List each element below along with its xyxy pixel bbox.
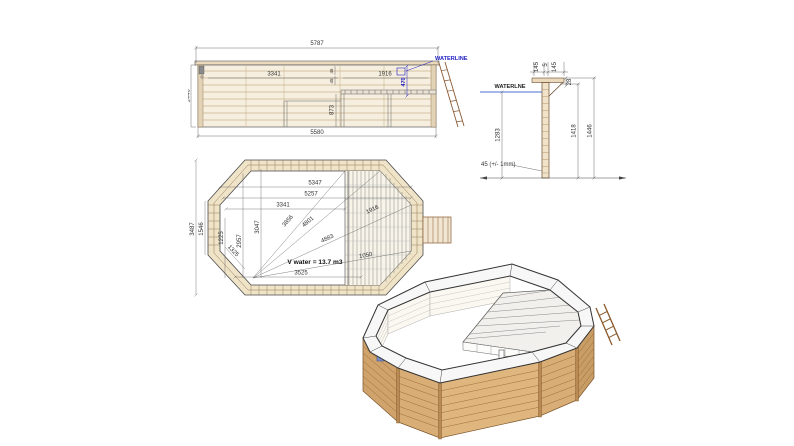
dim-cap-right: 145 xyxy=(552,61,558,72)
dim-deck-height: 873 xyxy=(330,104,336,115)
section-waterline-label: WATERLNE xyxy=(495,84,526,90)
section-detail-view: WATERLNE 145 5 145 28 1283 1418 1446 45 … xyxy=(478,38,628,188)
dim-rim-a: 45 xyxy=(329,68,334,73)
dim-rim-b: 45 xyxy=(329,78,334,83)
pool-technical-drawing: 5787 5580 1446 3341 1916 45 45 873 470 W… xyxy=(0,0,794,446)
dim-water-depth: 1283 xyxy=(496,128,502,142)
plan-ladder xyxy=(423,217,451,243)
dim-inner-length-a: 5347 xyxy=(308,181,322,187)
dim-height: 1446 xyxy=(188,89,192,103)
dim-vert-a: 2957 xyxy=(237,234,243,248)
dim-waterline-offset: 470 xyxy=(401,77,407,86)
dim-overall-width: 5787 xyxy=(310,41,324,47)
elevation-view: 5787 5580 1446 3341 1916 45 45 873 470 W… xyxy=(188,30,478,148)
dim-inner-length-b: 5257 xyxy=(304,192,318,198)
dim-base-width: 5580 xyxy=(310,130,324,136)
elevation-ladder xyxy=(439,62,464,127)
dim-cap-left: 145 xyxy=(534,61,540,72)
elevation-waterline-label: WATERLINE xyxy=(435,56,468,62)
dim-plan-open-length: 3341 xyxy=(276,203,290,209)
dim-cap-drop: 28 xyxy=(567,78,573,85)
dim-side-length: 1546 xyxy=(199,222,205,236)
dim-deck-length: 1916 xyxy=(378,72,392,78)
isometric-view xyxy=(350,248,662,446)
dim-inner-side: 1225 xyxy=(219,231,225,245)
dim-open-length: 3341 xyxy=(267,72,281,78)
dim-vert-b: 3047 xyxy=(255,220,261,234)
dim-bottom-length: 3525 xyxy=(294,271,308,277)
dim-plank-note: 45 (+/- 1mm) xyxy=(481,162,516,168)
dim-inner-height: 1418 xyxy=(572,124,578,138)
dim-plan-overall-width: 3487 xyxy=(190,222,196,236)
section-waterline-group: WATERLNE xyxy=(480,84,542,92)
volume-label: V water = 13.7 m3 xyxy=(287,259,342,266)
dim-total-height: 1446 xyxy=(588,124,594,138)
section-structure xyxy=(532,78,564,178)
iso-ladder xyxy=(596,304,620,345)
